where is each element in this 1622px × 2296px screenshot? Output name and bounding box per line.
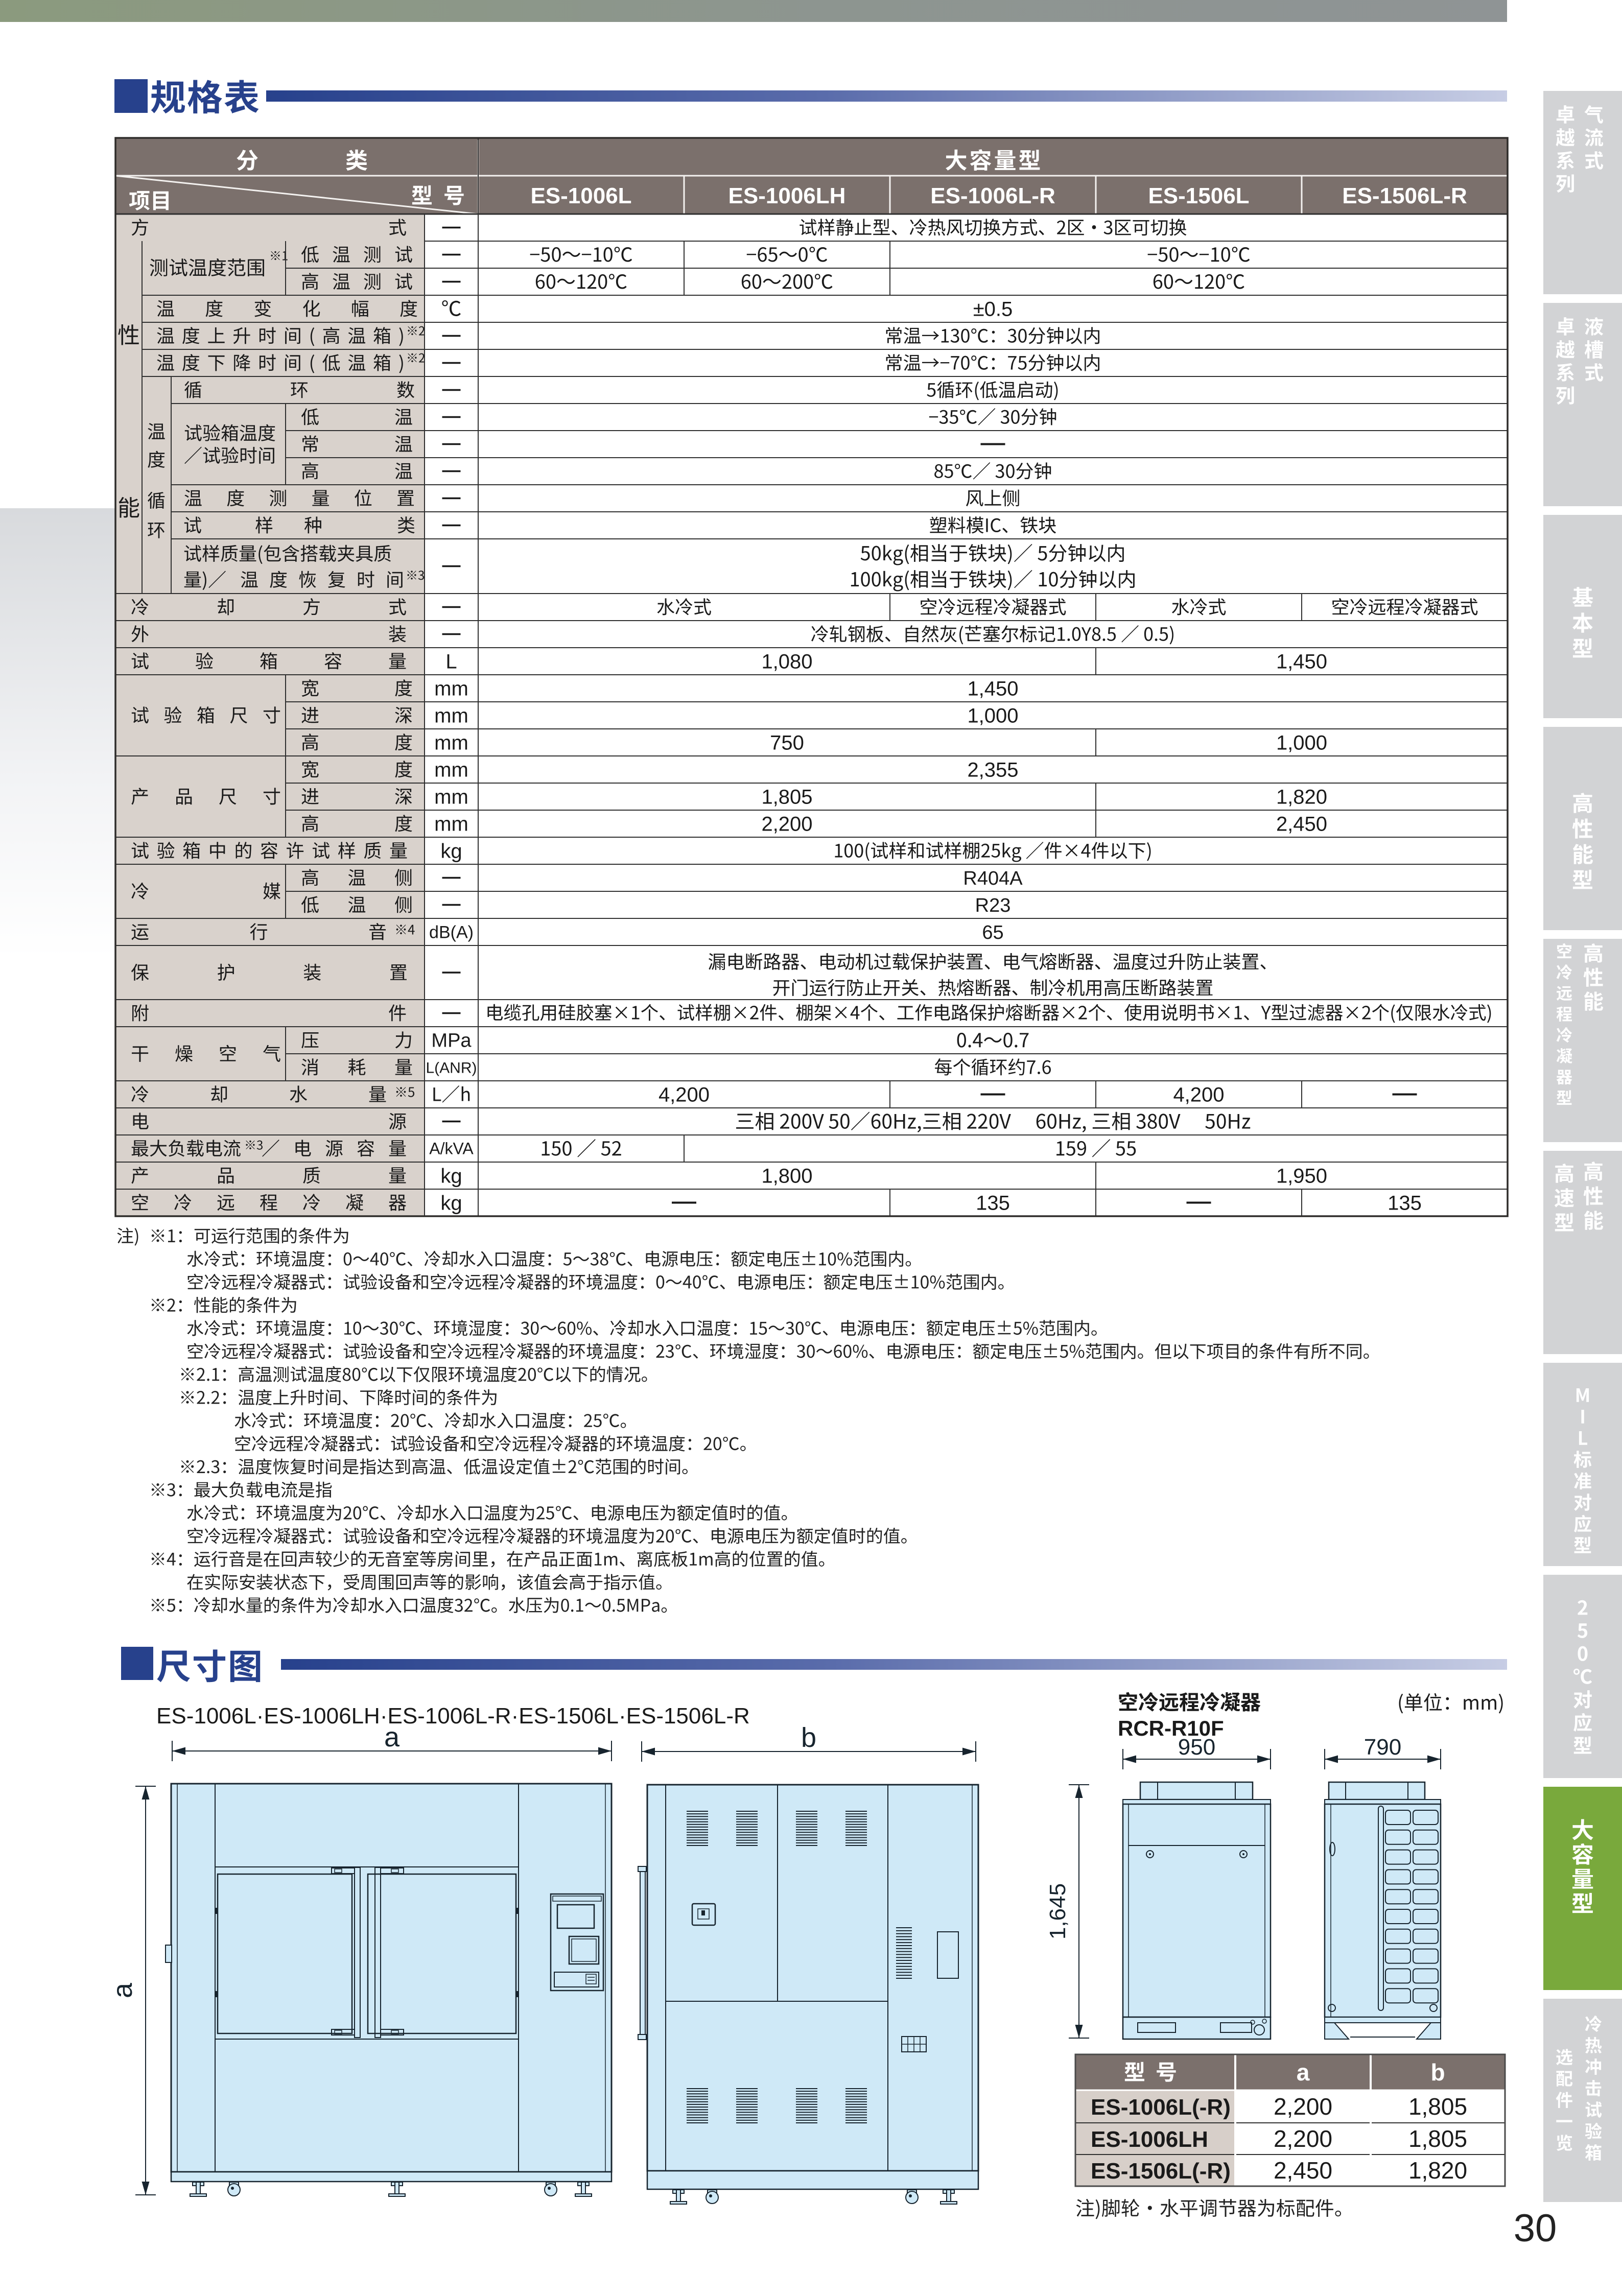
svg-text:1,000: 1,000: [967, 705, 1018, 727]
svg-text:4,200: 4,200: [659, 1084, 710, 1106]
svg-text:a: a: [107, 1982, 138, 1998]
svg-text:135: 135: [976, 1192, 1010, 1215]
svg-text:1,805: 1,805: [1408, 2125, 1467, 2152]
svg-text:mm: mm: [434, 732, 468, 754]
svg-text:1,820: 1,820: [1408, 2157, 1467, 2184]
svg-text:30: 30: [1514, 2207, 1557, 2250]
svg-text:L: L: [445, 651, 457, 673]
svg-text:mm: mm: [434, 705, 468, 727]
svg-text:65: 65: [982, 922, 1003, 943]
svg-text:b: b: [801, 1722, 816, 1753]
svg-text:ES-1506L-R: ES-1506L-R: [1342, 183, 1467, 208]
svg-text:1,820: 1,820: [1276, 786, 1327, 809]
svg-text:750: 750: [770, 732, 804, 754]
svg-text:ES-1006LH: ES-1006LH: [728, 183, 846, 208]
svg-text:kg: kg: [440, 1192, 462, 1215]
svg-text:ES-1506L(-R): ES-1506L(-R): [1091, 2159, 1231, 2184]
svg-text:L(ANR): L(ANR): [426, 1060, 477, 1077]
svg-text:4,200: 4,200: [1173, 1084, 1224, 1106]
svg-text:A/kVA: A/kVA: [429, 1140, 474, 1158]
svg-text:790: 790: [1364, 1735, 1401, 1760]
svg-text:2,450: 2,450: [1274, 2157, 1332, 2184]
svg-text:1,645: 1,645: [1045, 1883, 1070, 1939]
svg-text:mm: mm: [434, 678, 468, 700]
svg-text:1,950: 1,950: [1276, 1165, 1327, 1188]
svg-text:950: 950: [1178, 1735, 1215, 1760]
svg-text:ES-1006L(-R): ES-1006L(-R): [1091, 2095, 1231, 2120]
svg-text:135: 135: [1388, 1192, 1422, 1215]
svg-text:2,355: 2,355: [967, 759, 1018, 782]
svg-text:R23: R23: [975, 895, 1011, 916]
svg-text:b: b: [1430, 2059, 1445, 2086]
svg-text:2,450: 2,450: [1276, 813, 1327, 836]
svg-text:kg: kg: [440, 1165, 462, 1188]
svg-text:1,805: 1,805: [761, 786, 812, 809]
svg-text:1,000: 1,000: [1276, 732, 1327, 754]
svg-text:ES-1006L·ES-1006LH·ES-1006L-R·: ES-1006L·ES-1006LH·ES-1006L-R·ES-1506L·E…: [156, 1703, 750, 1729]
svg-text:mm: mm: [434, 786, 468, 809]
svg-text:ES-1006LH: ES-1006LH: [1091, 2127, 1208, 2152]
svg-text:kg: kg: [440, 840, 462, 863]
svg-text:MPa: MPa: [431, 1030, 472, 1052]
svg-text:1,080: 1,080: [761, 651, 812, 673]
svg-text:ES-1006L-R: ES-1006L-R: [930, 183, 1055, 208]
svg-text:a: a: [1297, 2059, 1310, 2086]
svg-text:a: a: [384, 1722, 400, 1753]
svg-text:mm: mm: [434, 813, 468, 836]
svg-text:2,200: 2,200: [1274, 2125, 1332, 2152]
svg-text:ES-1506L: ES-1506L: [1148, 183, 1249, 208]
svg-text:1,805: 1,805: [1408, 2093, 1467, 2120]
svg-text:±0.5: ±0.5: [973, 298, 1013, 321]
svg-text:R404A: R404A: [963, 868, 1023, 889]
svg-text:ES-1006L: ES-1006L: [530, 183, 631, 208]
svg-text:1,450: 1,450: [1276, 651, 1327, 673]
svg-text:dB(A): dB(A): [429, 923, 474, 942]
svg-text:2,200: 2,200: [1274, 2093, 1332, 2120]
svg-text:2,200: 2,200: [761, 813, 812, 836]
svg-text:1,450: 1,450: [967, 678, 1018, 700]
svg-text:1,800: 1,800: [761, 1165, 812, 1188]
svg-text:mm: mm: [434, 759, 468, 782]
